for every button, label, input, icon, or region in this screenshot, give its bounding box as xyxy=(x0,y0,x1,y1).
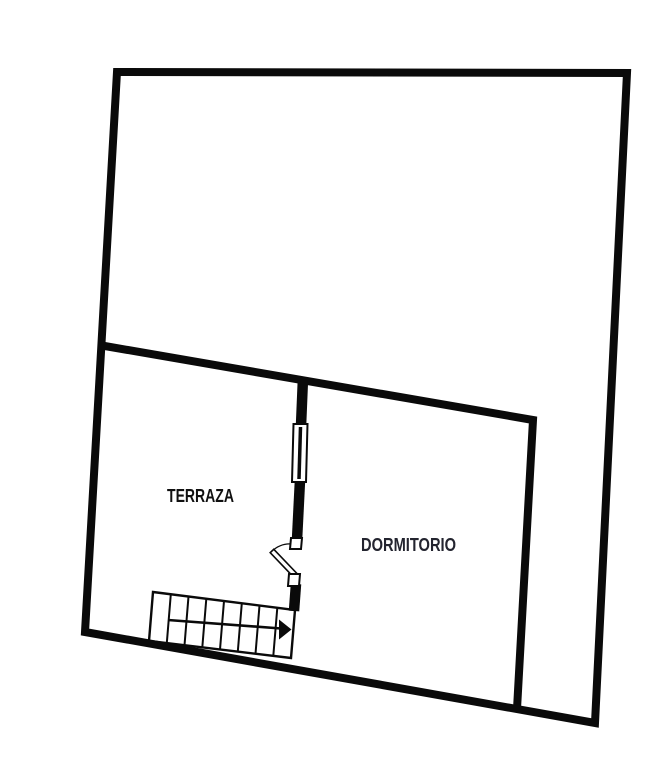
window-pane-line xyxy=(299,427,301,479)
window-symbol xyxy=(292,424,308,482)
door-jamb-top xyxy=(290,538,302,549)
room-label-terraza: TERRAZA xyxy=(167,485,234,506)
interior-wall xyxy=(99,345,533,709)
door-leaf xyxy=(270,549,297,576)
divider-wall-middle-segment xyxy=(297,480,300,540)
door-symbol xyxy=(270,538,302,586)
floor-plan-canvas: TERRAZA DORMITORIO xyxy=(0,0,663,768)
divider-wall-upper-segment xyxy=(301,378,303,426)
floor-plan: TERRAZA DORMITORIO xyxy=(0,0,663,768)
divider-wall-lower-segment xyxy=(294,584,296,611)
room-label-dormitorio: DORMITORIO xyxy=(361,535,456,555)
door-jamb-bottom xyxy=(288,574,300,586)
